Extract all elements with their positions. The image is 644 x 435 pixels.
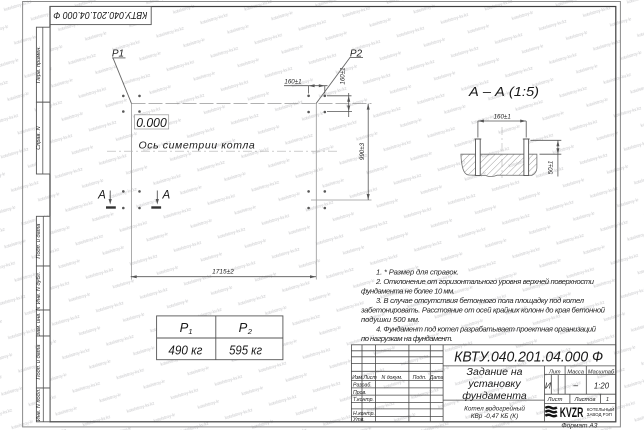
svg-text:2: 2 (247, 327, 253, 336)
svg-text:Лист: Лист (547, 397, 563, 403)
svg-text:установку: установку (467, 378, 521, 390)
svg-text:Ось симетрии котла: Ось симетрии котла (139, 140, 256, 152)
svg-text:2. Отклонение от горизонтально: 2. Отклонение от горизонтального уровня … (375, 277, 595, 286)
svg-text:Котел водогрейный: Котел водогрейный (464, 404, 525, 412)
svg-text:Изм.Лист: Изм.Лист (352, 375, 377, 381)
svg-text:КВТУ.040.201.04.000 Ф: КВТУ.040.201.04.000 Ф (53, 9, 147, 21)
svg-text:подушки 500 мм.: подушки 500 мм. (361, 315, 420, 324)
svg-text:Справ. N: Справ. N (36, 125, 42, 149)
svg-text:КОТЕЛЬНЫЙ: КОТЕЛЬНЫЙ (587, 407, 615, 412)
svg-text:А: А (161, 189, 170, 201)
svg-text:Инв. N дубл.: Инв. N дубл. (36, 272, 42, 304)
svg-text:Дата: Дата (429, 375, 444, 381)
svg-text:Пров.: Пров. (353, 390, 367, 396)
svg-text:990±3: 990±3 (359, 142, 366, 160)
svg-text:1:20: 1:20 (594, 381, 610, 390)
svg-text:по нагрузкам на фундамент.: по нагрузкам на фундамент. (361, 334, 453, 343)
svg-text:4. Фундамент под котел разраба: 4. Фундамент под котел разрабатывает про… (376, 325, 597, 334)
svg-text:P: P (239, 320, 248, 335)
svg-text:595 кг: 595 кг (229, 343, 263, 358)
svg-text:А: А (97, 189, 106, 201)
svg-text:Листов: Листов (573, 397, 595, 403)
svg-text:И: И (545, 381, 552, 391)
svg-text:Формат А3: Формат А3 (561, 423, 597, 430)
svg-text:3. В случае отсутствия бетонно: 3. В случае отсутствия бетонного пола пл… (376, 296, 585, 305)
svg-text:1. * Размер для справок.: 1. * Размер для справок. (376, 268, 459, 277)
svg-text:Т.контр.: Т.контр. (353, 397, 374, 403)
svg-text:Утв.: Утв. (353, 417, 365, 423)
svg-text:Подп. и дата: Подп. и дата (36, 344, 42, 379)
svg-text:–: – (572, 380, 578, 390)
svg-text:Масштаб: Масштаб (588, 369, 615, 375)
svg-text:1: 1 (606, 397, 609, 403)
svg-text:490 кг: 490 кг (168, 343, 203, 358)
svg-text:Задание на: Задание на (467, 366, 523, 378)
svg-text:ЗАВОД РЭП: ЗАВОД РЭП (587, 412, 612, 417)
svg-text:КВТУ.040.201.04.000 Ф: КВТУ.040.201.04.000 Ф (454, 349, 603, 366)
svg-text:1: 1 (188, 327, 192, 336)
svg-text:Подп.: Подп. (413, 375, 427, 381)
svg-text:Масса: Масса (567, 369, 584, 375)
svg-text:160±1: 160±1 (284, 79, 301, 86)
svg-text:160±1: 160±1 (340, 67, 347, 84)
svg-text:А – А (1:5): А – А (1:5) (468, 84, 539, 99)
svg-text:Лит: Лит (548, 369, 561, 375)
svg-text:0.000: 0.000 (136, 115, 167, 130)
svg-text:Взам. инв. N: Взам. инв. N (36, 306, 42, 340)
svg-text:Перв. примен.: Перв. примен. (36, 46, 42, 83)
svg-text:1715±2: 1715±2 (212, 269, 234, 276)
svg-text:KVZR: KVZR (560, 405, 584, 420)
svg-text:50±1: 50±1 (547, 161, 554, 175)
svg-text:P: P (180, 320, 189, 335)
svg-text:160±1: 160±1 (494, 114, 511, 121)
svg-text:фундамента: фундамента (462, 390, 527, 402)
svg-text:Разраб.: Разраб. (353, 383, 372, 389)
svg-text:забетонировать. Расстояние от: забетонировать. Расстояние от осей крайн… (360, 306, 606, 315)
svg-text:КВр -0,47 КБ (К): КВр -0,47 КБ (К) (471, 413, 518, 420)
svg-text:фундамента не более 10 мм.: фундамента не более 10 мм. (361, 287, 455, 296)
svg-text:Подп. и дата: Подп. и дата (36, 224, 42, 259)
svg-text:Инв. N подл.: Инв. N подл. (36, 389, 42, 422)
svg-text:N докум.: N докум. (382, 375, 403, 381)
